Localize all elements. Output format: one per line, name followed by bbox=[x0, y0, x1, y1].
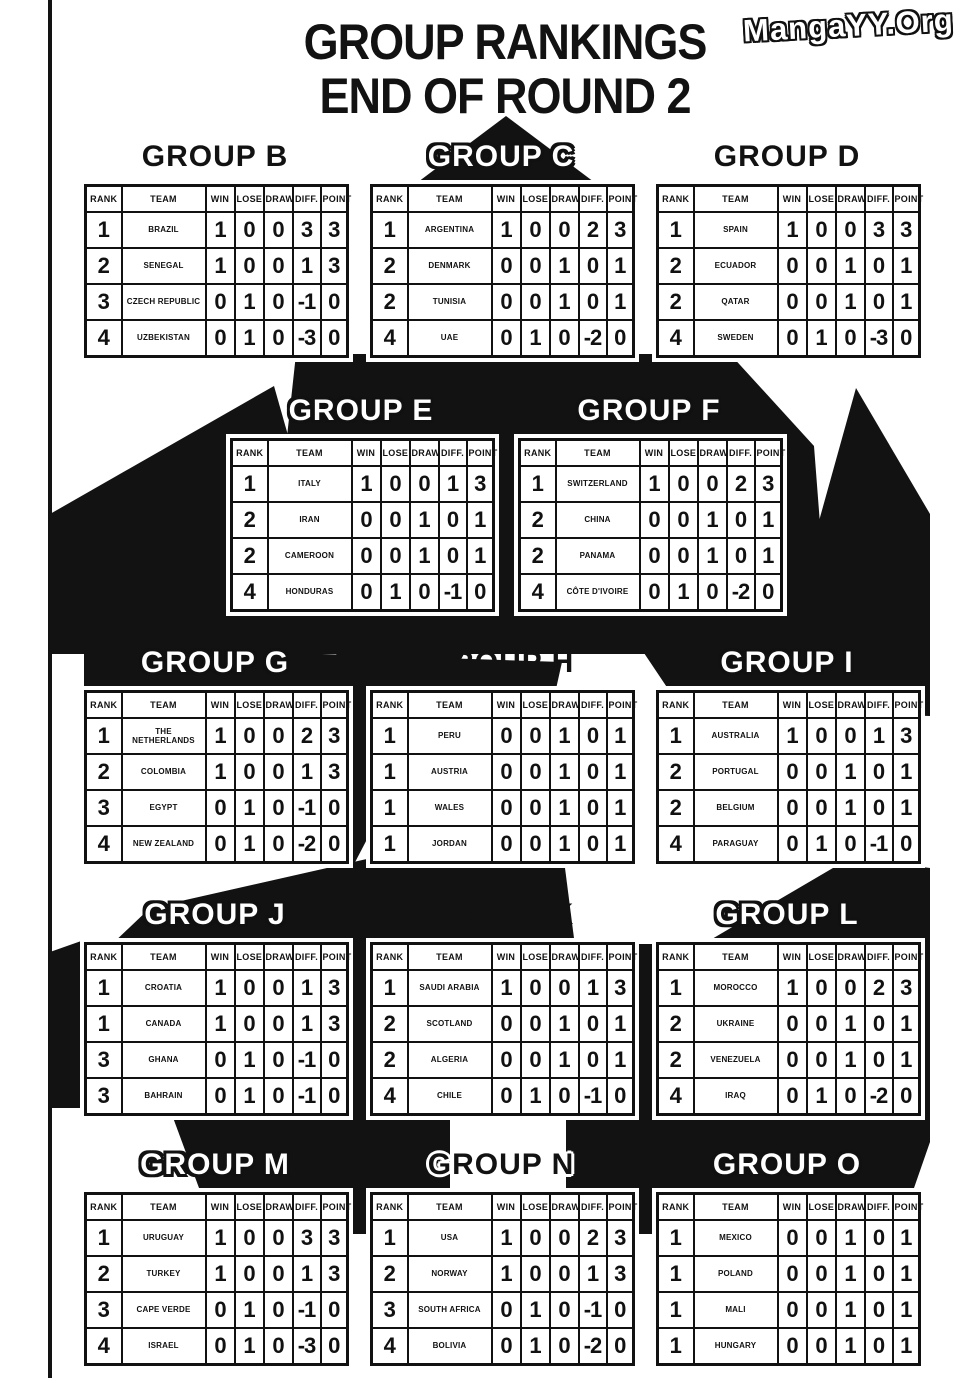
team-cell: PARAGUAY bbox=[694, 826, 778, 863]
rank-cell: 2 bbox=[658, 754, 694, 790]
table-head: RANKTEAMWINLOSEDRAWDIFF.POINT bbox=[86, 944, 348, 971]
rank-cell: 4 bbox=[658, 320, 694, 357]
rank-cell: 1 bbox=[372, 718, 408, 754]
lose-cell: 1 bbox=[235, 320, 264, 357]
draw-cell: 0 bbox=[264, 248, 293, 284]
table-row: 1MALI00101 bbox=[658, 1292, 920, 1328]
table-row: 1PERU00101 bbox=[372, 718, 634, 754]
diff-cell: 0 bbox=[727, 502, 755, 538]
column-header-diff: DIFF. bbox=[865, 692, 893, 719]
point-cell: 3 bbox=[321, 718, 348, 754]
point-cell: 1 bbox=[893, 1006, 920, 1042]
point-cell: 0 bbox=[467, 574, 494, 611]
win-cell: 1 bbox=[206, 970, 235, 1006]
lose-cell: 0 bbox=[521, 826, 550, 863]
column-header-lose: LOSE bbox=[235, 1194, 264, 1221]
draw-cell: 0 bbox=[836, 320, 865, 357]
rank-cell: 3 bbox=[86, 1042, 122, 1078]
group-h-section: GROUP HRANKTEAMWINLOSEDRAWDIFF.POINT1PER… bbox=[370, 644, 632, 864]
team-cell: SPAIN bbox=[694, 212, 778, 248]
lose-cell: 0 bbox=[521, 1042, 550, 1078]
draw-cell: 0 bbox=[264, 718, 293, 754]
column-header-draw: DRAW bbox=[698, 440, 727, 467]
team-cell: MEXICO bbox=[694, 1220, 778, 1256]
table-row: 4NEW ZEALAND010-20 bbox=[86, 826, 348, 863]
draw-cell: 1 bbox=[698, 538, 727, 574]
team-cell: VENEZUELA bbox=[694, 1042, 778, 1078]
draw-cell: 1 bbox=[550, 754, 579, 790]
point-cell: 0 bbox=[607, 320, 634, 357]
rank-cell: 2 bbox=[372, 1042, 408, 1078]
column-header-team: TEAM bbox=[408, 692, 492, 719]
group-l-section: GROUP LRANKTEAMWINLOSEDRAWDIFF.POINT1MOR… bbox=[656, 896, 918, 1116]
point-cell: 3 bbox=[321, 1256, 348, 1292]
rank-cell: 4 bbox=[372, 1328, 408, 1365]
lose-cell: 0 bbox=[807, 1292, 836, 1328]
rank-cell: 1 bbox=[658, 970, 694, 1006]
team-cell: BRAZIL bbox=[122, 212, 206, 248]
table-row: 1THE NETHERLANDS10023 bbox=[86, 718, 348, 754]
point-cell: 3 bbox=[755, 466, 782, 502]
team-cell: CHILE bbox=[408, 1078, 492, 1115]
group-e-table: RANKTEAMWINLOSEDRAWDIFF.POINT1ITALY10013… bbox=[230, 438, 495, 612]
group-g-title: GROUP G bbox=[84, 644, 346, 682]
draw-cell: 1 bbox=[836, 790, 865, 826]
win-cell: 1 bbox=[492, 212, 521, 248]
diff-cell: 0 bbox=[579, 1006, 607, 1042]
point-cell: 1 bbox=[607, 790, 634, 826]
rank-cell: 1 bbox=[86, 1006, 122, 1042]
point-cell: 0 bbox=[321, 1078, 348, 1115]
draw-cell: 0 bbox=[410, 466, 439, 502]
column-header-draw: DRAW bbox=[264, 692, 293, 719]
point-cell: 1 bbox=[607, 754, 634, 790]
win-cell: 0 bbox=[492, 1328, 521, 1365]
table-head: RANKTEAMWINLOSEDRAWDIFF.POINT bbox=[86, 1194, 348, 1221]
lose-cell: 0 bbox=[807, 212, 836, 248]
team-cell: BAHRAIN bbox=[122, 1078, 206, 1115]
draw-cell: 1 bbox=[836, 1042, 865, 1078]
column-header-diff: DIFF. bbox=[293, 1194, 321, 1221]
lose-cell: 0 bbox=[521, 1256, 550, 1292]
table-body: 1PERU001011AUSTRIA001011WALES001011JORDA… bbox=[372, 718, 634, 863]
column-header-point: POINT bbox=[893, 692, 920, 719]
column-header-lose: LOSE bbox=[521, 186, 550, 213]
team-cell: NORWAY bbox=[408, 1256, 492, 1292]
lose-cell: 1 bbox=[381, 574, 410, 611]
group-b-section: GROUP BRANKTEAMWINLOSEDRAWDIFF.POINT1BRA… bbox=[84, 138, 346, 358]
lose-cell: 0 bbox=[381, 538, 410, 574]
diff-cell: 0 bbox=[439, 538, 467, 574]
rank-cell: 1 bbox=[372, 970, 408, 1006]
rank-cell: 4 bbox=[372, 1078, 408, 1115]
column-header-team: TEAM bbox=[694, 944, 778, 971]
table-row: 1SWITZERLAND10023 bbox=[520, 466, 782, 502]
column-header-draw: DRAW bbox=[550, 692, 579, 719]
team-cell: THE NETHERLANDS bbox=[122, 718, 206, 754]
column-header-draw: DRAW bbox=[410, 440, 439, 467]
column-header-point: POINT bbox=[893, 1194, 920, 1221]
lose-cell: 0 bbox=[521, 754, 550, 790]
group-b-table: RANKTEAMWINLOSEDRAWDIFF.POINT1BRAZIL1003… bbox=[84, 184, 349, 358]
table-body: 1BRAZIL100332SENEGAL100133CZECH REPUBLIC… bbox=[86, 212, 348, 357]
win-cell: 0 bbox=[206, 826, 235, 863]
win-cell: 1 bbox=[640, 466, 669, 502]
header-row: RANKTEAMWINLOSEDRAWDIFF.POINT bbox=[658, 692, 920, 719]
group-h-title: GROUP H bbox=[370, 644, 632, 682]
rank-cell: 2 bbox=[520, 538, 556, 574]
group-n-section: GROUP NRANKTEAMWINLOSEDRAWDIFF.POINT1USA… bbox=[370, 1146, 632, 1366]
lose-cell: 0 bbox=[807, 284, 836, 320]
point-cell: 0 bbox=[893, 1078, 920, 1115]
lose-cell: 1 bbox=[521, 1292, 550, 1328]
point-cell: 3 bbox=[321, 248, 348, 284]
group-m-section: GROUP MRANKTEAMWINLOSEDRAWDIFF.POINT1URU… bbox=[84, 1146, 346, 1366]
column-header-diff: DIFF. bbox=[439, 440, 467, 467]
win-cell: 1 bbox=[206, 212, 235, 248]
win-cell: 0 bbox=[492, 1078, 521, 1115]
team-cell: ALGERIA bbox=[408, 1042, 492, 1078]
draw-cell: 1 bbox=[410, 538, 439, 574]
draw-cell: 0 bbox=[410, 574, 439, 611]
win-cell: 0 bbox=[492, 718, 521, 754]
column-header-point: POINT bbox=[607, 944, 634, 971]
column-header-rank: RANK bbox=[86, 944, 122, 971]
table-row: 3BAHRAIN010-10 bbox=[86, 1078, 348, 1115]
column-header-point: POINT bbox=[893, 944, 920, 971]
win-cell: 0 bbox=[778, 248, 807, 284]
table-row: 2TURKEY10013 bbox=[86, 1256, 348, 1292]
win-cell: 1 bbox=[492, 1220, 521, 1256]
diff-cell: 2 bbox=[293, 718, 321, 754]
rank-cell: 3 bbox=[86, 284, 122, 320]
diff-cell: 1 bbox=[293, 1256, 321, 1292]
group-n-title: GROUP N bbox=[370, 1146, 632, 1184]
draw-cell: 1 bbox=[550, 284, 579, 320]
win-cell: 0 bbox=[492, 754, 521, 790]
team-cell: PERU bbox=[408, 718, 492, 754]
point-cell: 1 bbox=[893, 1328, 920, 1365]
win-cell: 0 bbox=[778, 754, 807, 790]
team-cell: HUNGARY bbox=[694, 1328, 778, 1365]
rank-cell: 1 bbox=[232, 466, 268, 502]
column-header-win: WIN bbox=[206, 1194, 235, 1221]
column-header-draw: DRAW bbox=[264, 944, 293, 971]
win-cell: 0 bbox=[492, 1042, 521, 1078]
column-header-diff: DIFF. bbox=[865, 186, 893, 213]
header-row: RANKTEAMWINLOSEDRAWDIFF.POINT bbox=[232, 440, 494, 467]
point-cell: 1 bbox=[893, 1042, 920, 1078]
table-row: 1AUSTRALIA10013 bbox=[658, 718, 920, 754]
column-header-rank: RANK bbox=[520, 440, 556, 467]
table-row: 1SAUDI ARABIA10013 bbox=[372, 970, 634, 1006]
rank-cell: 1 bbox=[658, 1256, 694, 1292]
page-title-line2: END OF ROUND 2 bbox=[90, 66, 920, 126]
draw-cell: 0 bbox=[698, 574, 727, 611]
table-body: 1AUSTRALIA100132PORTUGAL001012BELGIUM001… bbox=[658, 718, 920, 863]
win-cell: 0 bbox=[206, 790, 235, 826]
point-cell: 3 bbox=[321, 970, 348, 1006]
table-row: 1WALES00101 bbox=[372, 790, 634, 826]
win-cell: 0 bbox=[778, 1292, 807, 1328]
team-cell: TURKEY bbox=[122, 1256, 206, 1292]
column-header-win: WIN bbox=[492, 944, 521, 971]
lose-cell: 1 bbox=[235, 1078, 264, 1115]
lose-cell: 0 bbox=[521, 790, 550, 826]
group-l-title: GROUP L bbox=[656, 896, 918, 934]
diff-cell: 1 bbox=[293, 754, 321, 790]
point-cell: 1 bbox=[893, 790, 920, 826]
column-header-team: TEAM bbox=[408, 186, 492, 213]
draw-cell: 0 bbox=[550, 320, 579, 357]
table-head: RANKTEAMWINLOSEDRAWDIFF.POINT bbox=[372, 186, 634, 213]
rank-cell: 3 bbox=[86, 790, 122, 826]
column-header-point: POINT bbox=[607, 692, 634, 719]
team-cell: CHINA bbox=[556, 502, 640, 538]
team-cell: GHANA bbox=[122, 1042, 206, 1078]
point-cell: 3 bbox=[893, 970, 920, 1006]
point-cell: 1 bbox=[607, 248, 634, 284]
draw-cell: 0 bbox=[264, 1006, 293, 1042]
lose-cell: 0 bbox=[807, 970, 836, 1006]
column-header-lose: LOSE bbox=[521, 692, 550, 719]
table-row: 3EGYPT010-10 bbox=[86, 790, 348, 826]
point-cell: 3 bbox=[321, 212, 348, 248]
draw-cell: 0 bbox=[264, 1220, 293, 1256]
draw-cell: 0 bbox=[264, 1328, 293, 1365]
rank-cell: 1 bbox=[86, 970, 122, 1006]
rank-cell: 2 bbox=[86, 248, 122, 284]
rank-cell: 2 bbox=[86, 1256, 122, 1292]
column-header-draw: DRAW bbox=[550, 186, 579, 213]
win-cell: 1 bbox=[778, 718, 807, 754]
table-row: 4IRAQ010-20 bbox=[658, 1078, 920, 1115]
column-header-lose: LOSE bbox=[381, 440, 410, 467]
win-cell: 1 bbox=[206, 718, 235, 754]
group-i-table: RANKTEAMWINLOSEDRAWDIFF.POINT1AUSTRALIA1… bbox=[656, 690, 921, 864]
table-body: 1SAUDI ARABIA100132SCOTLAND001012ALGERIA… bbox=[372, 970, 634, 1115]
column-header-point: POINT bbox=[321, 186, 348, 213]
header-row: RANKTEAMWINLOSEDRAWDIFF.POINT bbox=[372, 186, 634, 213]
team-cell: ISRAEL bbox=[122, 1328, 206, 1365]
lose-cell: 1 bbox=[521, 1328, 550, 1365]
rank-cell: 3 bbox=[372, 1292, 408, 1328]
win-cell: 0 bbox=[778, 826, 807, 863]
group-j-section: GROUP JRANKTEAMWINLOSEDRAWDIFF.POINT1CRO… bbox=[84, 896, 346, 1116]
column-header-win: WIN bbox=[640, 440, 669, 467]
table-head: RANKTEAMWINLOSEDRAWDIFF.POINT bbox=[232, 440, 494, 467]
column-header-team: TEAM bbox=[122, 1194, 206, 1221]
team-cell: CROATIA bbox=[122, 970, 206, 1006]
point-cell: 1 bbox=[893, 754, 920, 790]
win-cell: 0 bbox=[492, 826, 521, 863]
panel-border-line bbox=[48, 0, 52, 1378]
team-cell: DENMARK bbox=[408, 248, 492, 284]
point-cell: 0 bbox=[607, 1328, 634, 1365]
lose-cell: 0 bbox=[807, 1328, 836, 1365]
group-i-title: GROUP I bbox=[656, 644, 918, 682]
table-row: 4PARAGUAY010-10 bbox=[658, 826, 920, 863]
group-n-table: RANKTEAMWINLOSEDRAWDIFF.POINT1USA100232N… bbox=[370, 1192, 635, 1366]
ink-shard bbox=[50, 940, 84, 1108]
table-body: 1THE NETHERLANDS100232COLOMBIA100133EGYP… bbox=[86, 718, 348, 863]
win-cell: 1 bbox=[778, 212, 807, 248]
team-cell: EGYPT bbox=[122, 790, 206, 826]
diff-cell: 0 bbox=[579, 754, 607, 790]
column-header-lose: LOSE bbox=[235, 186, 264, 213]
point-cell: 0 bbox=[607, 1292, 634, 1328]
draw-cell: 0 bbox=[836, 1078, 865, 1115]
column-header-team: TEAM bbox=[556, 440, 640, 467]
point-cell: 0 bbox=[755, 574, 782, 611]
team-cell: PANAMA bbox=[556, 538, 640, 574]
point-cell: 3 bbox=[321, 754, 348, 790]
table-row: 4ISRAEL010-30 bbox=[86, 1328, 348, 1365]
column-header-team: TEAM bbox=[694, 692, 778, 719]
team-cell: NEW ZEALAND bbox=[122, 826, 206, 863]
lose-cell: 0 bbox=[235, 754, 264, 790]
lose-cell: 0 bbox=[235, 1220, 264, 1256]
table-row: 2PORTUGAL00101 bbox=[658, 754, 920, 790]
table-row: 2NORWAY10013 bbox=[372, 1256, 634, 1292]
rank-cell: 1 bbox=[658, 212, 694, 248]
point-cell: 0 bbox=[321, 320, 348, 357]
win-cell: 0 bbox=[778, 284, 807, 320]
lose-cell: 0 bbox=[807, 1256, 836, 1292]
point-cell: 0 bbox=[321, 1328, 348, 1365]
rank-cell: 1 bbox=[658, 1220, 694, 1256]
lose-cell: 0 bbox=[669, 466, 698, 502]
diff-cell: -1 bbox=[293, 790, 321, 826]
team-cell: BELGIUM bbox=[694, 790, 778, 826]
win-cell: 1 bbox=[492, 970, 521, 1006]
draw-cell: 0 bbox=[550, 1256, 579, 1292]
team-cell: SCOTLAND bbox=[408, 1006, 492, 1042]
draw-cell: 0 bbox=[264, 1078, 293, 1115]
draw-cell: 0 bbox=[550, 1078, 579, 1115]
draw-cell: 1 bbox=[550, 790, 579, 826]
column-header-draw: DRAW bbox=[836, 944, 865, 971]
column-header-point: POINT bbox=[321, 944, 348, 971]
diff-cell: 0 bbox=[865, 248, 893, 284]
lose-cell: 0 bbox=[235, 212, 264, 248]
column-header-point: POINT bbox=[755, 440, 782, 467]
column-header-lose: LOSE bbox=[669, 440, 698, 467]
group-d-table: RANKTEAMWINLOSEDRAWDIFF.POINT1SPAIN10033… bbox=[656, 184, 921, 358]
team-cell: ITALY bbox=[268, 466, 352, 502]
lose-cell: 0 bbox=[521, 1220, 550, 1256]
diff-cell: 0 bbox=[865, 790, 893, 826]
group-f-title: GROUP F bbox=[518, 392, 780, 430]
point-cell: 1 bbox=[893, 1256, 920, 1292]
draw-cell: 1 bbox=[836, 1328, 865, 1365]
column-header-win: WIN bbox=[778, 692, 807, 719]
win-cell: 0 bbox=[492, 790, 521, 826]
lose-cell: 1 bbox=[235, 790, 264, 826]
point-cell: 0 bbox=[607, 1078, 634, 1115]
diff-cell: 0 bbox=[727, 538, 755, 574]
diff-cell: -1 bbox=[579, 1078, 607, 1115]
lose-cell: 1 bbox=[521, 1078, 550, 1115]
win-cell: 0 bbox=[492, 248, 521, 284]
diff-cell: -3 bbox=[865, 320, 893, 357]
draw-cell: 0 bbox=[264, 970, 293, 1006]
column-header-rank: RANK bbox=[658, 186, 694, 213]
rank-cell: 2 bbox=[658, 1006, 694, 1042]
table-row: 2SENEGAL10013 bbox=[86, 248, 348, 284]
rank-cell: 2 bbox=[658, 790, 694, 826]
group-g-section: GROUP GRANKTEAMWINLOSEDRAWDIFF.POINT1THE… bbox=[84, 644, 346, 864]
rank-cell: 2 bbox=[232, 538, 268, 574]
column-header-point: POINT bbox=[607, 186, 634, 213]
win-cell: 0 bbox=[492, 284, 521, 320]
point-cell: 0 bbox=[321, 1292, 348, 1328]
win-cell: 0 bbox=[778, 1078, 807, 1115]
diff-cell: -1 bbox=[865, 826, 893, 863]
point-cell: 1 bbox=[607, 284, 634, 320]
header-row: RANKTEAMWINLOSEDRAWDIFF.POINT bbox=[372, 1194, 634, 1221]
point-cell: 0 bbox=[321, 284, 348, 320]
lose-cell: 0 bbox=[235, 1256, 264, 1292]
column-header-win: WIN bbox=[492, 186, 521, 213]
column-header-draw: DRAW bbox=[836, 692, 865, 719]
point-cell: 0 bbox=[321, 826, 348, 863]
win-cell: 0 bbox=[206, 1328, 235, 1365]
team-cell: USA bbox=[408, 1220, 492, 1256]
point-cell: 1 bbox=[607, 1042, 634, 1078]
group-d-section: GROUP DRANKTEAMWINLOSEDRAWDIFF.POINT1SPA… bbox=[656, 138, 918, 358]
table-row: 4CÔTE D'IVOIRE010-20 bbox=[520, 574, 782, 611]
point-cell: 3 bbox=[607, 212, 634, 248]
lose-cell: 0 bbox=[235, 248, 264, 284]
table-row: 4HONDURAS010-10 bbox=[232, 574, 494, 611]
column-header-rank: RANK bbox=[372, 692, 408, 719]
point-cell: 0 bbox=[321, 1042, 348, 1078]
draw-cell: 1 bbox=[550, 248, 579, 284]
lose-cell: 0 bbox=[235, 1006, 264, 1042]
diff-cell: 0 bbox=[579, 284, 607, 320]
win-cell: 0 bbox=[206, 284, 235, 320]
rank-cell: 4 bbox=[232, 574, 268, 611]
table-row: 1AUSTRIA00101 bbox=[372, 754, 634, 790]
win-cell: 0 bbox=[206, 1042, 235, 1078]
lose-cell: 0 bbox=[381, 502, 410, 538]
column-header-lose: LOSE bbox=[235, 692, 264, 719]
column-header-rank: RANK bbox=[658, 944, 694, 971]
diff-cell: -1 bbox=[293, 1292, 321, 1328]
header-row: RANKTEAMWINLOSEDRAWDIFF.POINT bbox=[86, 186, 348, 213]
win-cell: 0 bbox=[492, 1006, 521, 1042]
diff-cell: 3 bbox=[865, 212, 893, 248]
table-body: 1MEXICO001011POLAND001011MALI001011HUNGA… bbox=[658, 1220, 920, 1365]
lose-cell: 0 bbox=[807, 1006, 836, 1042]
column-header-team: TEAM bbox=[122, 944, 206, 971]
group-k-title: GROUP K bbox=[370, 896, 632, 934]
point-cell: 1 bbox=[893, 248, 920, 284]
draw-cell: 0 bbox=[264, 826, 293, 863]
rank-cell: 1 bbox=[520, 466, 556, 502]
draw-cell: 0 bbox=[264, 320, 293, 357]
point-cell: 1 bbox=[893, 284, 920, 320]
table-row: 1JORDAN00101 bbox=[372, 826, 634, 863]
rank-cell: 4 bbox=[86, 1328, 122, 1365]
column-header-draw: DRAW bbox=[836, 1194, 865, 1221]
table-row: 1ARGENTINA10023 bbox=[372, 212, 634, 248]
diff-cell: 0 bbox=[865, 1292, 893, 1328]
group-d-title: GROUP D bbox=[656, 138, 918, 176]
table-body: 1SWITZERLAND100232CHINA001012PANAMA00101… bbox=[520, 466, 782, 611]
draw-cell: 1 bbox=[836, 248, 865, 284]
